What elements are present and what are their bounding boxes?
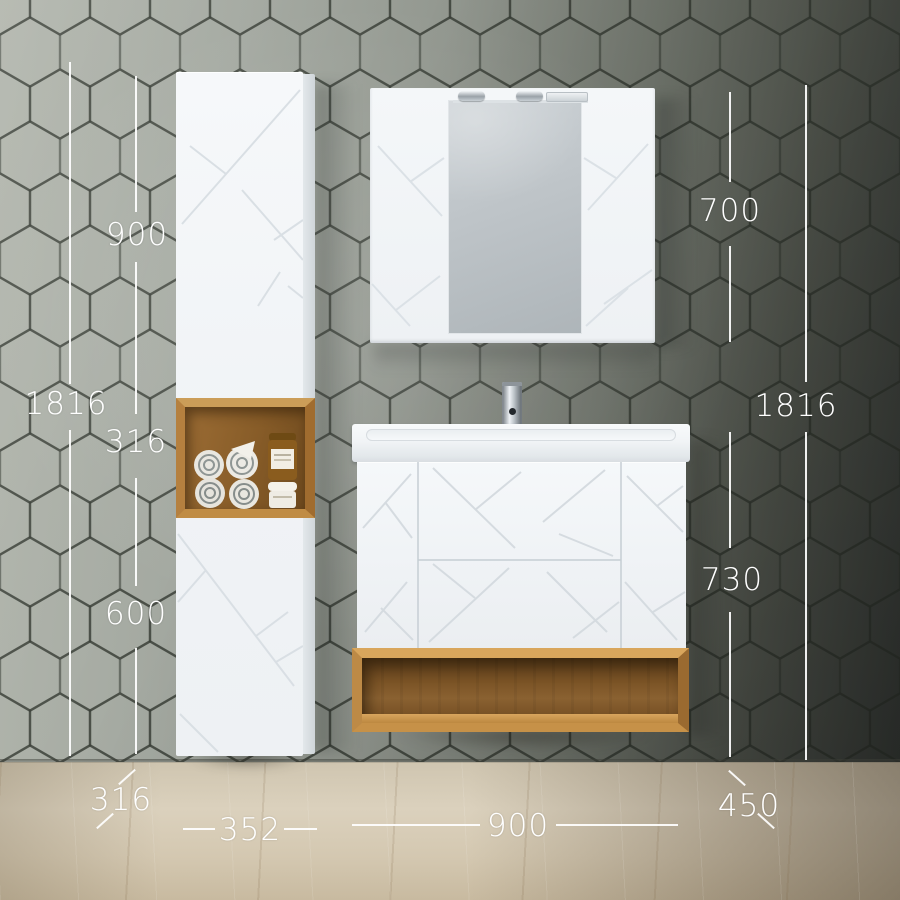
decor-lines-right-door [582, 88, 655, 343]
shadow [374, 344, 654, 370]
dim-line-right-total [805, 85, 807, 382]
light-switch-box [546, 92, 588, 102]
shadow [356, 730, 692, 776]
amber-jar [268, 433, 297, 480]
dim-label-right-total-height: 1816 [755, 388, 838, 424]
dim-label-vanity-width: 900 [487, 808, 549, 844]
niche-contents [185, 407, 305, 509]
dim-line-cabinet-width [284, 828, 317, 830]
dim-label-upper-door-height: 900 [106, 217, 168, 253]
faucet-cap [502, 382, 522, 386]
dim-line-right-total [805, 432, 807, 760]
product-dimension-render: 1816 900 316 600 700 730 1816 352 900 31… [0, 0, 900, 900]
drawer-seams [418, 462, 621, 648]
dim-line-left-total [69, 62, 71, 384]
vanity-cabinet [357, 462, 686, 648]
dim-line-vanity-height [729, 432, 731, 548]
dim-line-left-total [69, 430, 71, 756]
faucet-knob [509, 408, 516, 415]
dim-label-side-cabinet-width: 352 [219, 812, 281, 848]
storage-niche [176, 398, 315, 518]
shadow [655, 98, 695, 348]
faucet [502, 382, 522, 426]
open-shelf [352, 648, 689, 732]
dim-label-vanity-height: 730 [701, 562, 763, 598]
mirror [448, 100, 582, 334]
dim-label-vanity-depth: 450 [718, 788, 780, 824]
dim-line-vanity-width [556, 824, 678, 826]
decor-lines-upper-door [176, 72, 303, 398]
dim-line-mirror-height [729, 246, 731, 342]
mirror-lamp-icon [516, 91, 543, 101]
dim-line-lower-door [135, 648, 137, 754]
dim-label-side-cabinet-depth: 316 [90, 782, 152, 818]
dim-line-mirror-height [729, 92, 731, 182]
shelf-front-lip [362, 714, 678, 723]
towel-rolls [194, 441, 259, 509]
dim-line-lower-door [135, 478, 137, 586]
dim-label-lower-door-height: 600 [105, 596, 167, 632]
dim-line-vanity-width [352, 824, 480, 826]
dim-line-upper-door [135, 76, 137, 212]
shadow [314, 84, 356, 752]
tall-side-cabinet [176, 72, 315, 756]
dim-label-niche-height: 316 [105, 424, 167, 460]
white-jar [268, 482, 297, 508]
decor-lines-lower-door [176, 518, 303, 756]
dim-line-cabinet-width [183, 828, 215, 830]
mirror-cabinet [370, 88, 655, 343]
dim-label-mirror-cabinet-height: 700 [699, 193, 761, 229]
basin-rim [366, 429, 676, 441]
mirror-lamp-icon [458, 91, 485, 101]
decor-lines-left-door [370, 88, 448, 343]
dim-line-vanity-height [729, 612, 731, 757]
decor-lines-vanity [357, 462, 686, 648]
sink-countertop [352, 424, 690, 462]
dim-line-upper-door [135, 262, 137, 414]
dim-label-left-total-height: 1816 [25, 386, 108, 422]
